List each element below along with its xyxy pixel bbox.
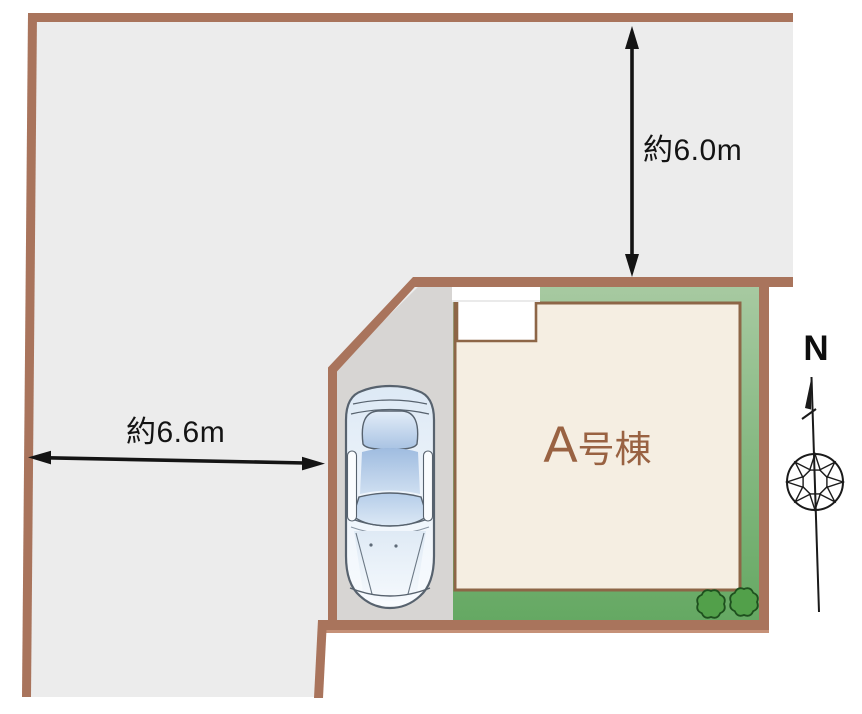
car-rear-window: [362, 411, 417, 449]
parcel-border-bottom: [322, 620, 769, 630]
parcel-border-bottom-light: [322, 630, 769, 633]
building-label: A号棟: [455, 419, 740, 470]
site-plan-canvas: 約6.0m 約6.6m A号棟 N: [0, 0, 862, 714]
building-entrance-notch: [457, 302, 536, 341]
building-porch: [452, 286, 540, 302]
car-top-view-icon: [346, 386, 434, 608]
dimension-label-west: 約6.6m: [126, 418, 225, 448]
boundary-top: [28, 13, 793, 22]
parcel-border-top: [413, 277, 793, 287]
site-plan-drawing: [0, 0, 862, 714]
compass-north-label: N: [795, 331, 837, 366]
car-windshield: [353, 493, 427, 526]
compass-rose-north-icon: [787, 377, 843, 612]
parcel-border-right: [759, 277, 769, 630]
car-roof: [360, 448, 420, 494]
dimension-label-north: 約6.0m: [643, 136, 742, 166]
